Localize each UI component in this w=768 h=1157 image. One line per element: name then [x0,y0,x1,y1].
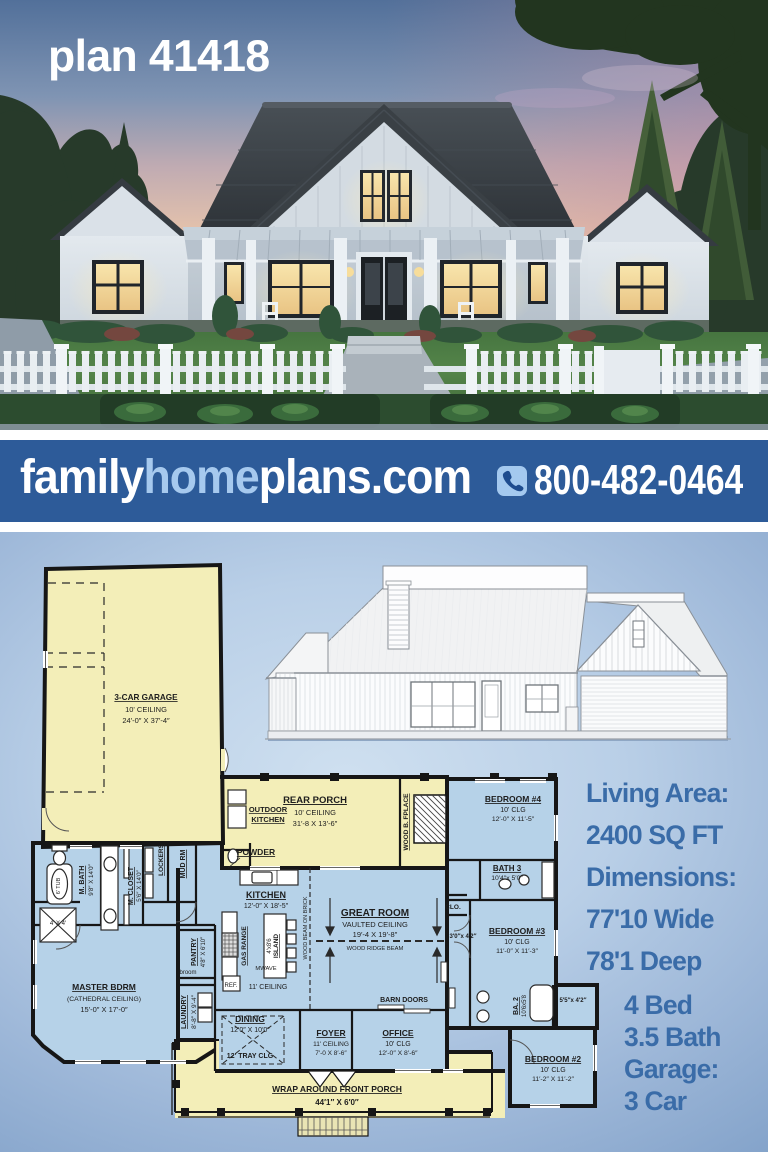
svg-text:3.5 Bath: 3.5 Bath [624,1022,721,1052]
svg-text:Living Area:: Living Area: [586,778,729,808]
svg-text:12' TRAY CLG: 12' TRAY CLG [227,1053,274,1060]
svg-text:15′-0″ X 17′-0″: 15′-0″ X 17′-0″ [80,1005,128,1014]
svg-text:5′5″x 4′2″: 5′5″x 4′2″ [560,998,587,1004]
svg-text:7′-0 X 8′-6″: 7′-0 X 8′-6″ [315,1050,347,1057]
svg-text:M. BATH: M. BATH [79,866,86,895]
svg-text:MUD RM: MUD RM [180,849,187,878]
svg-text:3′0″x 4′2″: 3′0″x 4′2″ [450,934,477,940]
svg-text:BARN DOORS: BARN DOORS [380,997,428,1004]
svg-text:10′4″x 5′0″: 10′4″x 5′0″ [491,875,523,882]
svg-text:WOOD RIDGE BEAM: WOOD RIDGE BEAM [347,946,404,952]
svg-text:KITCHEN: KITCHEN [246,890,286,900]
svg-text:OUTDOOR: OUTDOOR [249,805,288,814]
svg-text:10′6x5′8: 10′6x5′8 [522,994,528,1017]
svg-text:GREAT ROOM: GREAT ROOM [341,908,409,919]
svg-text:12′0″ X 10′0″: 12′0″ X 10′0″ [230,1027,270,1034]
svg-text:4′8″ X 6′10″: 4′8″ X 6′10″ [201,936,207,967]
svg-text:5′6″ X 14′0″: 5′6″ X 14′0″ [136,869,143,901]
svg-text:10' CLG: 10' CLG [500,807,525,814]
svg-text:KITCHEN: KITCHEN [251,815,284,824]
svg-text:6' TUB: 6' TUB [56,877,62,894]
svg-text:FOYER: FOYER [316,1028,345,1038]
svg-text:BATH 3: BATH 3 [493,864,522,873]
svg-text:GAS RANGE: GAS RANGE [241,926,248,966]
svg-text:WOOD BEAM ON BRICK: WOOD BEAM ON BRICK [303,896,309,959]
svg-text:10' CLG: 10' CLG [540,1067,565,1074]
svg-text:DINING: DINING [235,1014,265,1024]
svg-text:11' CEILING: 11' CEILING [249,984,288,991]
svg-text:24′-0″ X 37′-4″: 24′-0″ X 37′-4″ [122,716,170,725]
svg-text:11′-0″ X 11′-3″: 11′-0″ X 11′-3″ [496,948,538,955]
svg-text:10' CLG: 10' CLG [385,1041,410,1048]
svg-text:ISLAND: ISLAND [273,934,280,959]
svg-text:12′-0″ X 11′-5″: 12′-0″ X 11′-5″ [492,816,535,823]
svg-text:MASTER BDRM: MASTER BDRM [72,982,136,992]
svg-text:10' CEILING: 10' CEILING [125,705,167,714]
svg-text:MWAVE: MWAVE [255,966,276,972]
svg-text:77'10 Wide: 77'10 Wide [586,904,714,934]
svg-text:10' CEILING: 10' CEILING [294,808,336,817]
svg-text:3 Car: 3 Car [624,1086,687,1116]
svg-text:PANTRY: PANTRY [191,938,198,966]
svg-text:Garage:: Garage: [624,1054,719,1084]
svg-text:OFFICE: OFFICE [382,1028,413,1038]
svg-text:(CATHEDRAL CEILING): (CATHEDRAL CEILING) [67,996,141,1003]
svg-text:19′-4 X 19′-8″: 19′-4 X 19′-8″ [353,930,398,939]
svg-text:broom: broom [179,970,196,976]
svg-text:4′ X 4′: 4′ X 4′ [50,921,67,927]
svg-text:BA. 2: BA. 2 [513,997,520,1015]
svg-text:LOCKERS: LOCKERS [158,843,165,875]
svg-text:10' CLG: 10' CLG [504,939,529,946]
svg-text:BEDROOM #4: BEDROOM #4 [485,794,541,804]
svg-text:11′-2″ X 11′-2″: 11′-2″ X 11′-2″ [532,1076,574,1083]
svg-text:8′-8″ X 9′-4″: 8′-8″ X 9′-4″ [191,994,198,1028]
svg-text:12′-0″ X 18′-5″: 12′-0″ X 18′-5″ [244,903,289,910]
svg-text:78'1 Deep: 78'1 Deep [586,946,702,976]
svg-text:3-CAR GARAGE: 3-CAR GARAGE [114,693,178,702]
svg-text:44′1″ X 6′0″: 44′1″ X 6′0″ [315,1098,359,1107]
svg-text:BEDROOM #3: BEDROOM #3 [489,926,545,936]
svg-text:Dimensions:: Dimensions: [586,862,736,892]
svg-text:plan 41418: plan 41418 [48,32,270,81]
svg-text:LAUNDRY: LAUNDRY [181,995,188,1029]
svg-text:WRAP AROUND FRONT PORCH: WRAP AROUND FRONT PORCH [272,1084,402,1094]
svg-text:M. CLOSET: M. CLOSET [128,866,135,905]
svg-text:12′-0″ X 8′-6″: 12′-0″ X 8′-6″ [378,1050,418,1057]
svg-text:WOOD B. FPLACE: WOOD B. FPLACE [403,793,410,851]
svg-text:CLO.: CLO. [445,904,461,911]
svg-text:2400 SQ FT: 2400 SQ FT [586,820,723,850]
svg-text:11' CEILING: 11' CEILING [313,1041,349,1048]
svg-text:POWDER: POWDER [237,847,275,857]
svg-text:REF.: REF. [224,983,237,989]
svg-text:9′8″ X 14′0″: 9′8″ X 14′0″ [88,863,95,895]
svg-text:31′-8 X 13′-6″: 31′-8 X 13′-6″ [293,819,338,828]
svg-text:VAULTED CEILING: VAULTED CEILING [342,920,408,929]
svg-text:BEDROOM #2: BEDROOM #2 [525,1054,581,1064]
svg-text:REAR PORCH: REAR PORCH [283,795,347,806]
svg-text:4 Bed: 4 Bed [624,990,692,1020]
